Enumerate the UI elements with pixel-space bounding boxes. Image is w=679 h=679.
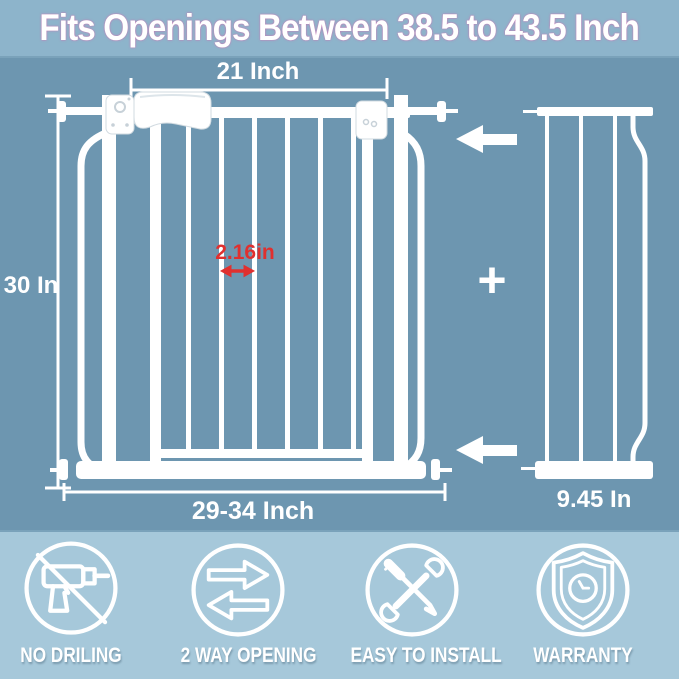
gate-bottom-rail: [76, 461, 426, 479]
no-drill-icon: [19, 538, 123, 642]
extension-bottom-bar: [535, 461, 653, 479]
gate-handle: [134, 92, 211, 129]
bar-gap-arrow-icon: [221, 266, 254, 277]
bottom-width-label: 29-34 Inch: [128, 497, 378, 526]
gate-hinge: [106, 95, 134, 134]
door-bars: [186, 115, 356, 455]
bar-gap-label: 2.16in: [200, 241, 290, 265]
extension-panel: [521, 107, 653, 479]
gate-latch: [356, 101, 387, 139]
feature-label: EASY TO INSTALL: [351, 644, 474, 668]
two-way-opening-icon: [186, 538, 290, 642]
crossed-tools-icon: [360, 538, 464, 642]
extension-edge-bar: [633, 116, 645, 461]
right-frame-post: [394, 95, 408, 467]
product-infographic: Fits Openings Between 38.5 to 43.5 Inch: [0, 0, 679, 679]
top-width-label: 21 Inch: [158, 58, 358, 86]
feature-no-drilling: NO DRILING: [6, 538, 136, 668]
plus-icon: +: [462, 252, 522, 308]
extension-bars: [545, 116, 617, 461]
door-left-post: [150, 112, 161, 464]
feature-label: 2 WAY OPENING: [181, 644, 296, 668]
feature-easy-to-install: EASY TO INSTALL: [337, 538, 487, 668]
left-arrow-icon: [456, 125, 517, 153]
door-bottom-rail: [150, 449, 373, 458]
feature-label: WARRANTY: [530, 644, 637, 668]
extension-top-bar: [537, 107, 653, 116]
height-label: 30 In: [0, 272, 62, 300]
door-right-post: [362, 112, 373, 464]
extension-width-label: 9.45 In: [530, 486, 658, 514]
feature-label: NO DRILING: [18, 644, 125, 668]
left-frame-post: [102, 95, 116, 467]
shield-warranty-icon: [531, 538, 635, 642]
gate-structure: [48, 92, 458, 480]
footer-band: NO DRILING 2 WAY OPENING: [0, 530, 679, 679]
feature-two-way-opening: 2 WAY OPENING: [168, 538, 308, 668]
feature-warranty: WARRANTY: [518, 538, 648, 668]
left-arrow-icon: [456, 436, 517, 464]
